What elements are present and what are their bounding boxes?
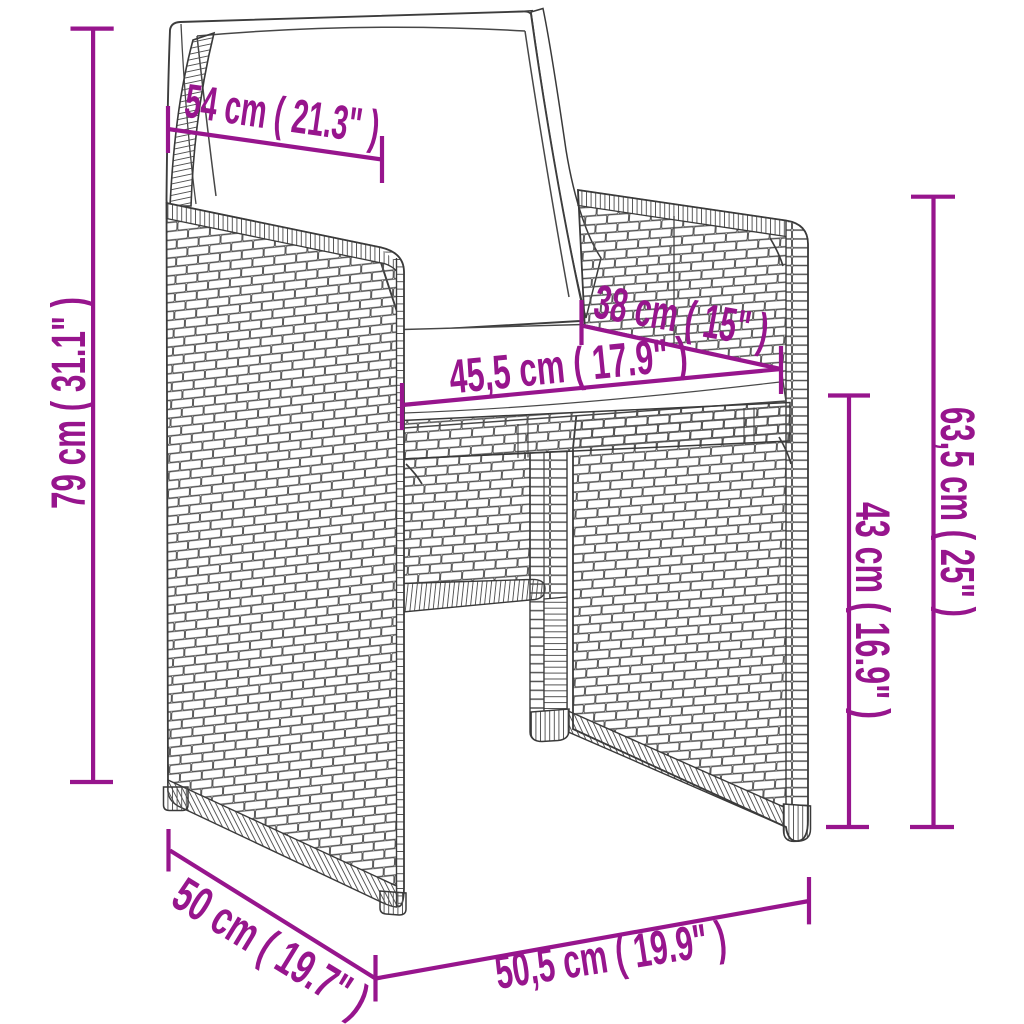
svg-text:43 cm ( 16.9" ): 43 cm ( 16.9" ) xyxy=(845,502,898,719)
svg-text:79 cm ( 31.1" ): 79 cm ( 31.1" ) xyxy=(43,297,96,509)
svg-text:63,5 cm ( 25" ): 63,5 cm ( 25" ) xyxy=(930,407,983,617)
